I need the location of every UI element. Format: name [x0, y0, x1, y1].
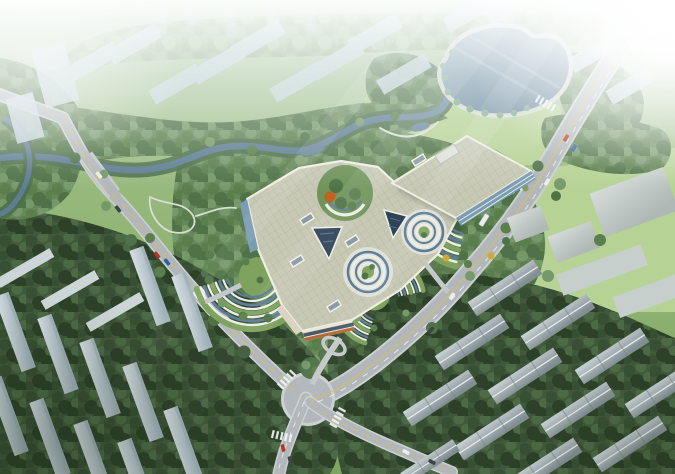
- aerial-rendering: Aerial architectural rendering of a tri-…: [0, 0, 675, 474]
- rendering-stage: Aerial architectural rendering of a tri-…: [0, 0, 675, 474]
